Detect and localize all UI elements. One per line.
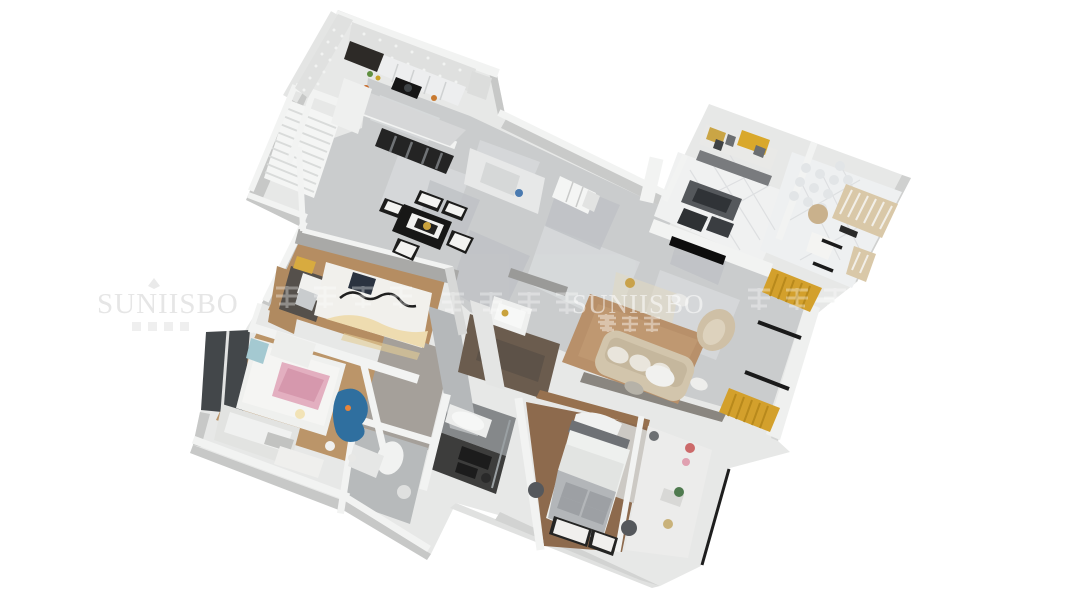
- svg-text:SUNIISBO: SUNIISBO: [97, 288, 239, 320]
- svg-text:SUNIISBO: SUNIISBO: [572, 289, 705, 319]
